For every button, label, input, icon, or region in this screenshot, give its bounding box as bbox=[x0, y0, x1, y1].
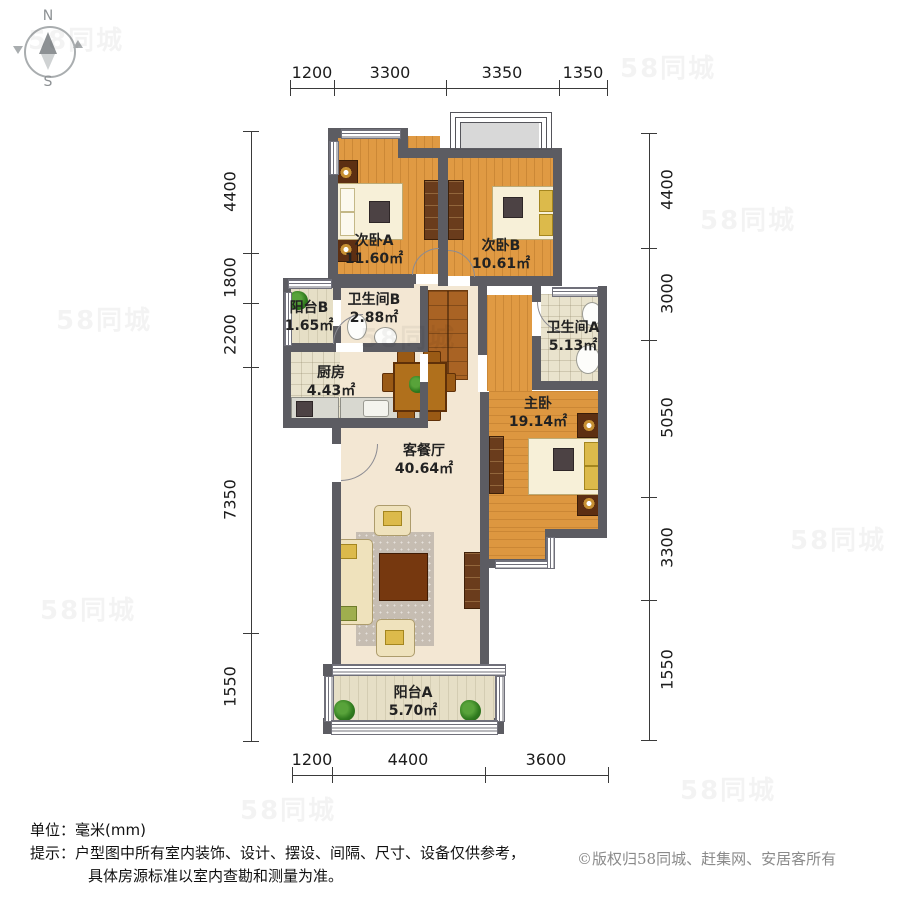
dimension-tick bbox=[641, 740, 657, 741]
watermark: 58同城 bbox=[360, 318, 456, 355]
dim-top-3300: 3300 bbox=[370, 63, 411, 82]
room-area: 5.70㎡ bbox=[389, 702, 438, 720]
room-area: 40.64㎡ bbox=[395, 460, 453, 478]
door-opening bbox=[336, 343, 363, 352]
dimension-tick bbox=[641, 340, 657, 341]
window bbox=[324, 676, 334, 722]
room-area: 11.60㎡ bbox=[345, 250, 403, 268]
wall-segment bbox=[532, 381, 607, 390]
dimension-tick bbox=[334, 80, 335, 96]
room-name: 厨房 bbox=[307, 364, 356, 382]
dimension-tick bbox=[641, 133, 657, 134]
dimension-line-right bbox=[649, 133, 650, 740]
watermark: 58同城 bbox=[620, 48, 716, 85]
armchair-cushion bbox=[385, 630, 404, 645]
balcony-railing bbox=[331, 720, 498, 735]
wall-segment bbox=[283, 418, 420, 428]
wall-segment bbox=[553, 148, 562, 286]
coffee-table bbox=[379, 553, 428, 601]
pillow bbox=[340, 188, 355, 212]
sliding-window bbox=[332, 664, 506, 676]
dimension-tick bbox=[243, 633, 259, 634]
dim-left-2200: 2200 bbox=[221, 295, 240, 375]
window bbox=[288, 279, 332, 289]
window bbox=[495, 676, 505, 722]
wall-segment bbox=[480, 392, 489, 568]
room-label-master-bedroom: 主卧 19.14㎡ bbox=[509, 395, 567, 431]
dim-top-3350: 3350 bbox=[482, 63, 523, 82]
dimension-tick bbox=[641, 497, 657, 498]
wall-segment bbox=[332, 418, 341, 444]
kitchen-sink bbox=[363, 400, 389, 417]
dimension-line-top bbox=[290, 88, 608, 89]
bay-window bbox=[460, 122, 542, 150]
dim-right-3000: 3000 bbox=[658, 254, 677, 334]
room-name: 次卧B bbox=[472, 237, 530, 255]
wall-segment bbox=[332, 482, 341, 672]
copyright-note: ©版权归58同城、赶集网、安居客所有 bbox=[577, 848, 836, 869]
room-label-bathroom-a: 卫生间A 5.13㎡ bbox=[547, 319, 600, 355]
room-name: 卫生间B bbox=[348, 291, 401, 309]
door-opening bbox=[333, 300, 341, 326]
wall-segment bbox=[480, 559, 489, 672]
dim-right-5050: 5050 bbox=[658, 378, 677, 458]
watermark: 58同城 bbox=[28, 20, 124, 57]
watermark: 58同城 bbox=[790, 520, 886, 557]
room-name: 客餐厅 bbox=[395, 442, 453, 460]
dim-top-1200: 1200 bbox=[292, 63, 333, 82]
dimension-tick bbox=[446, 80, 447, 96]
sofa-pillow bbox=[340, 544, 357, 559]
window bbox=[495, 560, 548, 569]
dimension-tick bbox=[243, 253, 259, 254]
room-area: 4.43㎡ bbox=[307, 382, 356, 400]
bed-throw bbox=[553, 448, 574, 471]
window bbox=[341, 129, 401, 139]
door-opening bbox=[478, 355, 487, 392]
dimension-tick bbox=[243, 741, 259, 742]
room-name: 阳台A bbox=[389, 684, 438, 702]
disclaimer-line2: 具体房源标准以室内查勘和测量为准。 bbox=[88, 865, 343, 886]
compass-arrowhead-left bbox=[13, 46, 23, 54]
wall-segment bbox=[283, 352, 291, 428]
unit-note: 单位：毫米(mm) bbox=[30, 819, 146, 840]
room-name: 主卧 bbox=[509, 395, 567, 413]
window bbox=[329, 141, 339, 175]
dimension-tick bbox=[485, 767, 486, 783]
floorplan-canvas: N S bbox=[0, 0, 900, 900]
dim-left-7350: 7350 bbox=[221, 460, 240, 540]
wall-segment bbox=[470, 276, 562, 286]
wall-segment bbox=[438, 156, 448, 286]
dimension-tick bbox=[559, 80, 560, 96]
stove bbox=[296, 401, 313, 417]
room-area: 19.14㎡ bbox=[509, 413, 567, 431]
dim-right-1550: 1550 bbox=[658, 630, 677, 710]
armchair-cushion bbox=[383, 511, 402, 526]
room-label-bedroom-b: 次卧B 10.61㎡ bbox=[472, 237, 530, 273]
pillow bbox=[584, 466, 599, 490]
pillow bbox=[584, 442, 599, 466]
dim-bottom-1200: 1200 bbox=[292, 750, 333, 769]
wall-segment bbox=[532, 286, 541, 302]
dimension-tick bbox=[243, 303, 259, 304]
dimension-tick bbox=[243, 131, 259, 132]
wall-segment bbox=[478, 286, 487, 355]
dimension-tick bbox=[292, 767, 293, 783]
room-area: 5.13㎡ bbox=[547, 337, 600, 355]
dimension-tick bbox=[243, 367, 259, 368]
dimension-line-bottom bbox=[292, 775, 608, 776]
dimension-tick bbox=[290, 80, 291, 96]
door-opening bbox=[416, 274, 438, 284]
room-label-balcony-a: 阳台A 5.70㎡ bbox=[389, 684, 438, 720]
dim-bottom-4400: 4400 bbox=[388, 750, 429, 769]
window bbox=[552, 287, 598, 297]
watermark: 58同城 bbox=[40, 590, 136, 627]
watermark: 58同城 bbox=[56, 300, 152, 337]
dim-right-4400: 4400 bbox=[658, 150, 677, 230]
wall-segment bbox=[420, 382, 428, 428]
dim-bottom-3600: 3600 bbox=[526, 750, 567, 769]
sofa-pillow bbox=[340, 606, 357, 621]
dimension-tick bbox=[607, 80, 608, 96]
bed-throw bbox=[369, 201, 390, 223]
dim-left-4400: 4400 bbox=[221, 152, 240, 232]
floor-master-bedroom bbox=[489, 531, 547, 562]
wardrobe-bedroom-b bbox=[448, 180, 464, 240]
watermark: 58同城 bbox=[240, 790, 336, 827]
dimension-line-left bbox=[251, 131, 252, 741]
dimension-tick bbox=[608, 767, 609, 783]
door-opening bbox=[332, 444, 341, 482]
room-label-balcony-b: 阳台B 1.65㎡ bbox=[285, 299, 334, 335]
dimension-tick bbox=[332, 767, 333, 783]
plant bbox=[460, 700, 481, 721]
watermark: 58同城 bbox=[680, 770, 776, 807]
dim-top-1350: 1350 bbox=[563, 63, 604, 82]
room-name: 卫生间A bbox=[547, 319, 600, 337]
dimension-tick bbox=[641, 600, 657, 601]
dim-left-1550: 1550 bbox=[221, 647, 240, 727]
room-name: 阳台B bbox=[285, 299, 334, 317]
disclaimer-line1: 提示：户型图中所有室内装饰、设计、摆设、间隔、尺寸、设备仅供参考， bbox=[30, 842, 525, 863]
room-area: 10.61㎡ bbox=[472, 255, 530, 273]
plant bbox=[334, 700, 355, 721]
bed-throw bbox=[503, 197, 523, 218]
watermark: 58同城 bbox=[700, 200, 796, 237]
tv-cabinet-master bbox=[489, 436, 504, 494]
compass-south-label: S bbox=[40, 74, 56, 90]
pillow bbox=[539, 190, 553, 212]
floor-master-corridor bbox=[487, 295, 532, 391]
dim-right-3300: 3300 bbox=[658, 508, 677, 588]
pillow bbox=[539, 214, 553, 236]
door-opening bbox=[448, 276, 470, 286]
room-name: 次卧A bbox=[345, 232, 403, 250]
room-label-kitchen: 厨房 4.43㎡ bbox=[307, 364, 356, 400]
dimension-tick bbox=[641, 248, 657, 249]
door-opening bbox=[420, 354, 428, 382]
room-label-bedroom-a: 次卧A 11.60㎡ bbox=[345, 232, 403, 268]
room-area: 1.65㎡ bbox=[285, 317, 334, 335]
room-label-living-dining: 客餐厅 40.64㎡ bbox=[395, 442, 453, 478]
